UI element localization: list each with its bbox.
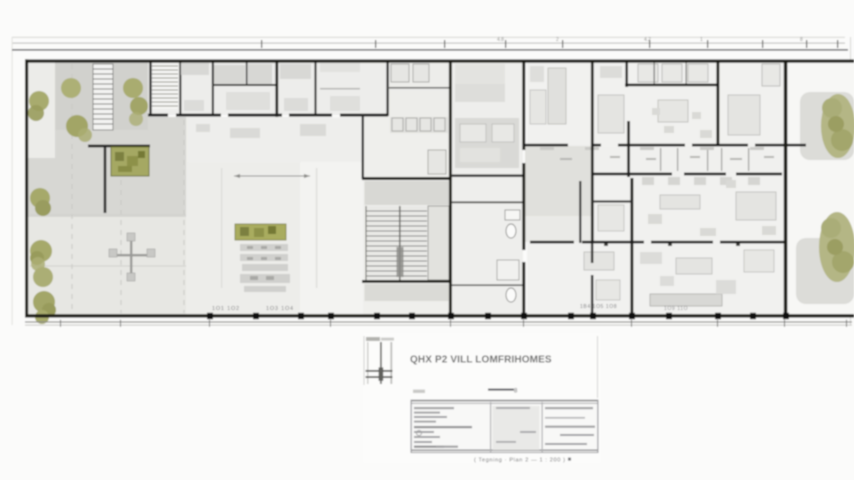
svg-text:1: 1	[700, 37, 703, 43]
svg-text:1O1 1O2: 1O1 1O2	[212, 306, 240, 312]
svg-text:4.8: 4.8	[497, 37, 504, 43]
svg-text:2: 2	[556, 37, 559, 43]
svg-text:8: 8	[800, 37, 803, 43]
svg-text:1B4 1O5 1O8: 1B4 1O5 1O8	[580, 304, 617, 310]
svg-text:1O3 1O4: 1O3 1O4	[266, 306, 294, 312]
svg-text:QHX P2 VILL LOMFRIHOMES: QHX P2 VILL LOMFRIHOMES	[410, 355, 552, 366]
svg-text:4.2: 4.2	[644, 37, 651, 43]
svg-text:1O9 11O: 1O9 11O	[664, 306, 688, 312]
svg-text:( Tegning · Plan 2 — 1 : 2: ( Tegning · Plan 2 — 1 : 200 )	[474, 458, 565, 464]
